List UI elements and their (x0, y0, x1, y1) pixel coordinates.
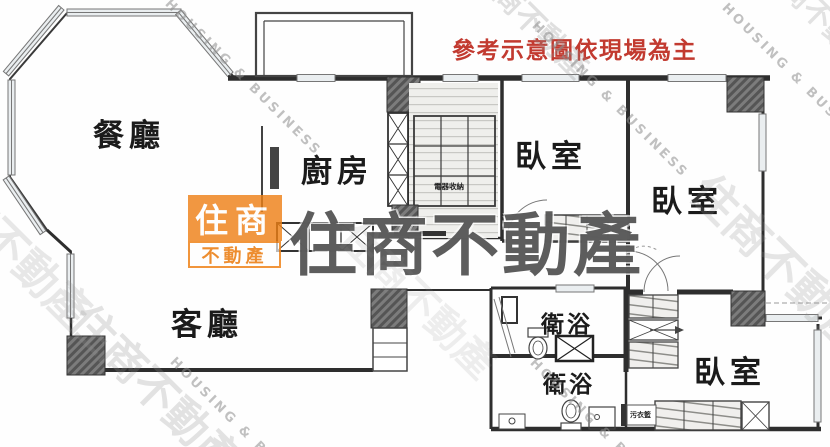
room-label-living: 客廳 (171, 299, 243, 344)
water-heater (502, 297, 517, 323)
closet-bedroom1 (545, 215, 628, 241)
room-label-bedroom-bottom-right: 臥室 (694, 347, 766, 392)
washer-box (556, 336, 593, 361)
toilet-lower (561, 400, 581, 430)
wardrobe-bottom (655, 401, 769, 430)
floor-plan-page: 餐廳 廚房 臥室 臥室 客廳 衛浴 衛浴 臥室 電器收納 污衣籃 參考示意圖依現… (0, 0, 830, 447)
room-label-bath-upper: 衛浴 (541, 305, 593, 339)
closet-bedroom3 (629, 295, 684, 368)
kitchen-cabinet (270, 147, 279, 189)
disclaimer-note: 參考示意圖依現場為主 (452, 31, 697, 65)
room-label-kitchen: 廚房 (301, 146, 373, 191)
window (556, 114, 821, 422)
room-label-dining: 餐廳 (93, 110, 165, 155)
sink (499, 414, 525, 429)
shower (589, 407, 615, 429)
label-laundry-basket: 污衣籃 (630, 410, 651, 420)
room-label-bath-lower: 衛浴 (543, 365, 595, 399)
shelf-cabinet (373, 328, 407, 371)
counter-edge (394, 231, 446, 236)
cabinet (392, 205, 418, 231)
label-appliance-storage: 電器收納 (434, 181, 464, 192)
storage-floor (409, 83, 498, 238)
tall-cabinet (388, 113, 408, 206)
room-label-bedroom-top-right: 臥室 (651, 176, 723, 221)
balcony (256, 13, 412, 76)
room-label-bedroom-top-left: 臥室 (515, 131, 587, 176)
kitchen-counter (277, 223, 373, 251)
window (3, 6, 233, 318)
